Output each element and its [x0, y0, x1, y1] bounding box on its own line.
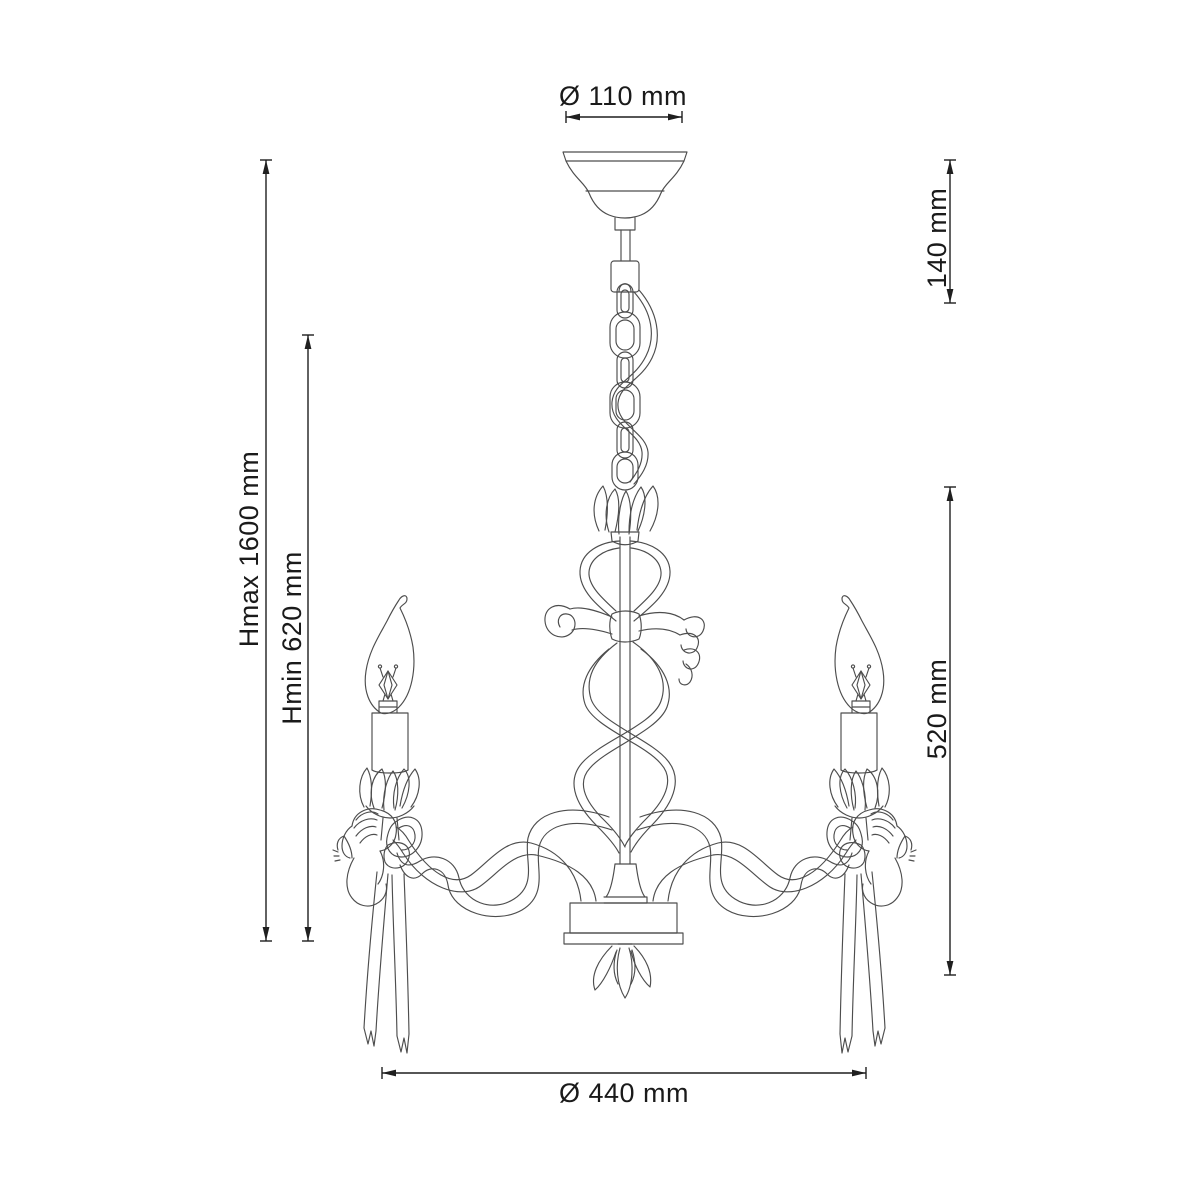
arrowhead: [566, 114, 580, 121]
arm-ribbon: [397, 810, 612, 916]
ribbon-tails: [364, 817, 422, 1053]
ribbon-bow: [545, 606, 704, 685]
leaf-finial: [594, 944, 651, 998]
page: Ø 110 mm 140 mm Hmax 1600 mm Hmin 620 mm…: [0, 0, 1200, 1200]
arrowhead: [852, 1070, 866, 1077]
arm: [393, 827, 596, 901]
chain: [610, 284, 640, 490]
chandelier-line-art: [333, 152, 916, 1053]
arrowhead: [668, 114, 682, 121]
label-height-min: Hmin 620 mm: [277, 551, 307, 725]
arrowhead: [263, 927, 270, 941]
label-canopy-section-height: 140 mm: [922, 188, 952, 289]
side-assembly-right: [637, 596, 916, 1053]
flame-bulb: [365, 596, 414, 714]
arrowhead: [263, 160, 270, 174]
technical-drawing-canvas: Ø 110 mm 140 mm Hmax 1600 mm Hmin 620 mm…: [0, 0, 1200, 1200]
hub-drum: [564, 903, 683, 944]
tulip-ornament: [594, 486, 658, 545]
candle-sleeve: [372, 713, 408, 773]
dim-canopy-diameter: [566, 111, 682, 123]
arrowhead: [947, 961, 954, 975]
side-assembly-left: [333, 596, 612, 1053]
arrowhead: [305, 335, 312, 349]
ceiling-canopy: [563, 152, 687, 230]
arrowhead: [305, 927, 312, 941]
dimension-labels: Ø 110 mm 140 mm Hmax 1600 mm Hmin 620 mm…: [234, 81, 952, 1108]
label-body-height: 520 mm: [922, 659, 952, 760]
spiral-ribbons: [574, 642, 675, 853]
arrowhead: [382, 1070, 396, 1077]
arrowhead: [947, 289, 954, 303]
label-height-max: Hmax 1600 mm: [234, 451, 264, 648]
suspension-rod: [611, 230, 639, 292]
label-body-diameter: Ø 440 mm: [559, 1078, 689, 1108]
arrowhead: [947, 160, 954, 174]
label-canopy-diameter: Ø 110 mm: [559, 81, 687, 111]
heart-ornament: [580, 541, 670, 621]
arrowhead: [947, 487, 954, 501]
dimension-annotations: [260, 111, 956, 1079]
